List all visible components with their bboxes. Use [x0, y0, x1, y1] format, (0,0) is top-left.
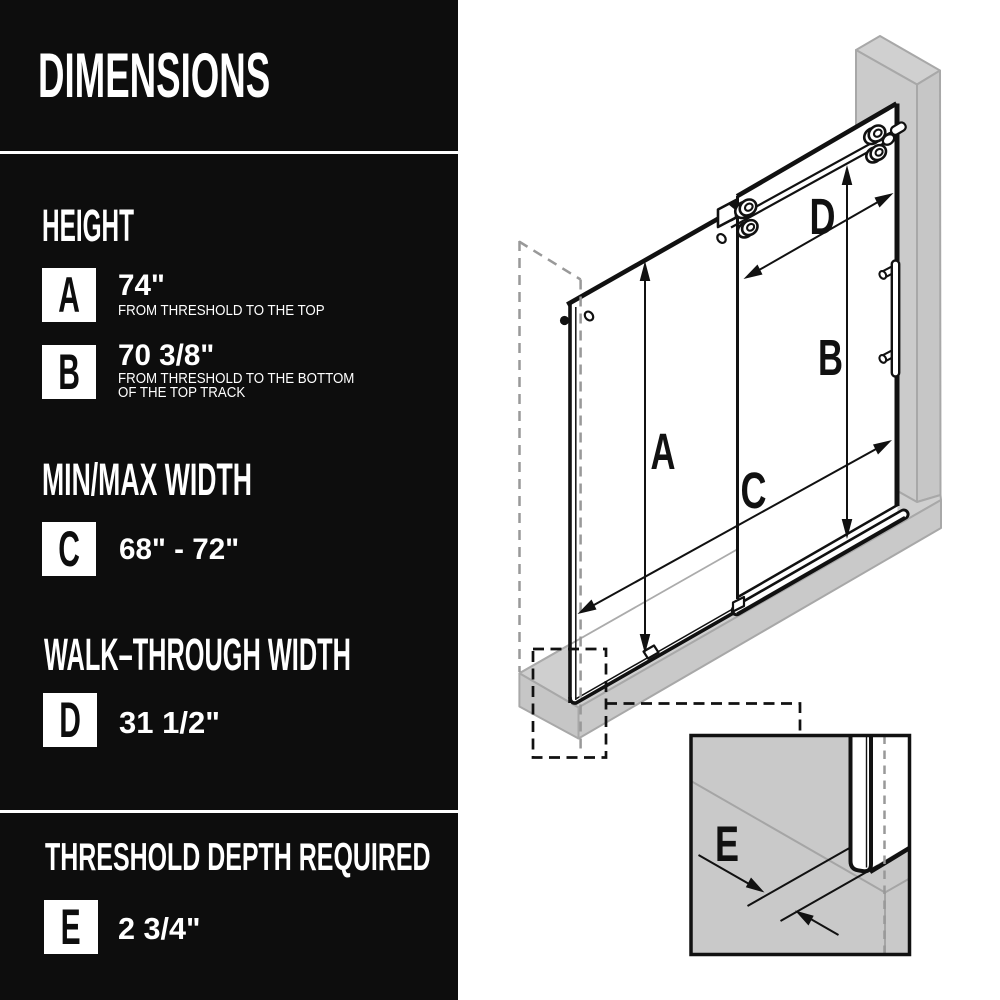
- svg-text:E: E: [715, 816, 739, 872]
- svg-text:A: A: [651, 423, 676, 480]
- svg-text:D: D: [810, 188, 836, 245]
- svg-text:C: C: [741, 462, 767, 519]
- svg-text:B: B: [818, 329, 843, 386]
